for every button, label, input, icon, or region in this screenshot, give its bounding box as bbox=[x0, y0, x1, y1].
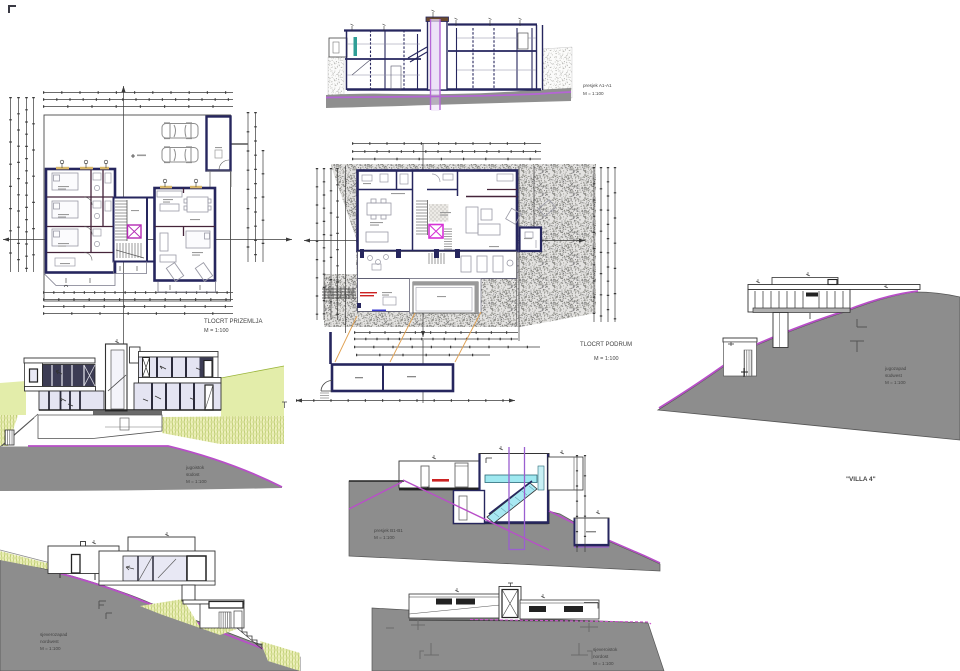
svg-text:nordost: nordost bbox=[593, 654, 609, 659]
svg-text:M = 1:100: M = 1:100 bbox=[40, 646, 61, 651]
svg-text:nordwest: nordwest bbox=[40, 639, 59, 644]
svg-text:TLOCRT PRIZEMLJA: TLOCRT PRIZEMLJA bbox=[204, 319, 262, 325]
svg-text:südwest: südwest bbox=[885, 373, 903, 378]
svg-text:TLOCRT PODRUM: TLOCRT PODRUM bbox=[580, 342, 632, 348]
svg-text:südost: südost bbox=[186, 472, 200, 477]
svg-text:sjeverozapad: sjeverozapad bbox=[40, 632, 68, 637]
svg-text:M = 1:100: M = 1:100 bbox=[186, 479, 207, 484]
svg-text:M = 1:100: M = 1:100 bbox=[885, 380, 906, 385]
svg-text:presjek A1-A1: presjek A1-A1 bbox=[583, 83, 612, 88]
svg-text:M = 1:100: M = 1:100 bbox=[374, 535, 395, 540]
svg-text:sjeveroistok: sjeveroistok bbox=[593, 647, 618, 652]
svg-text:jugozapad: jugozapad bbox=[884, 366, 907, 371]
svg-text:presjek B1-B1: presjek B1-B1 bbox=[374, 528, 403, 533]
svg-text:jugoistok: jugoistok bbox=[185, 465, 205, 470]
svg-text:M = 1:100: M = 1:100 bbox=[594, 356, 619, 362]
svg-text:M = 1:100: M = 1:100 bbox=[204, 328, 229, 334]
svg-text:M = 1:100: M = 1:100 bbox=[593, 661, 614, 666]
svg-text:"VILLA 4": "VILLA 4" bbox=[846, 476, 876, 483]
svg-text:M = 1:100: M = 1:100 bbox=[583, 91, 604, 96]
